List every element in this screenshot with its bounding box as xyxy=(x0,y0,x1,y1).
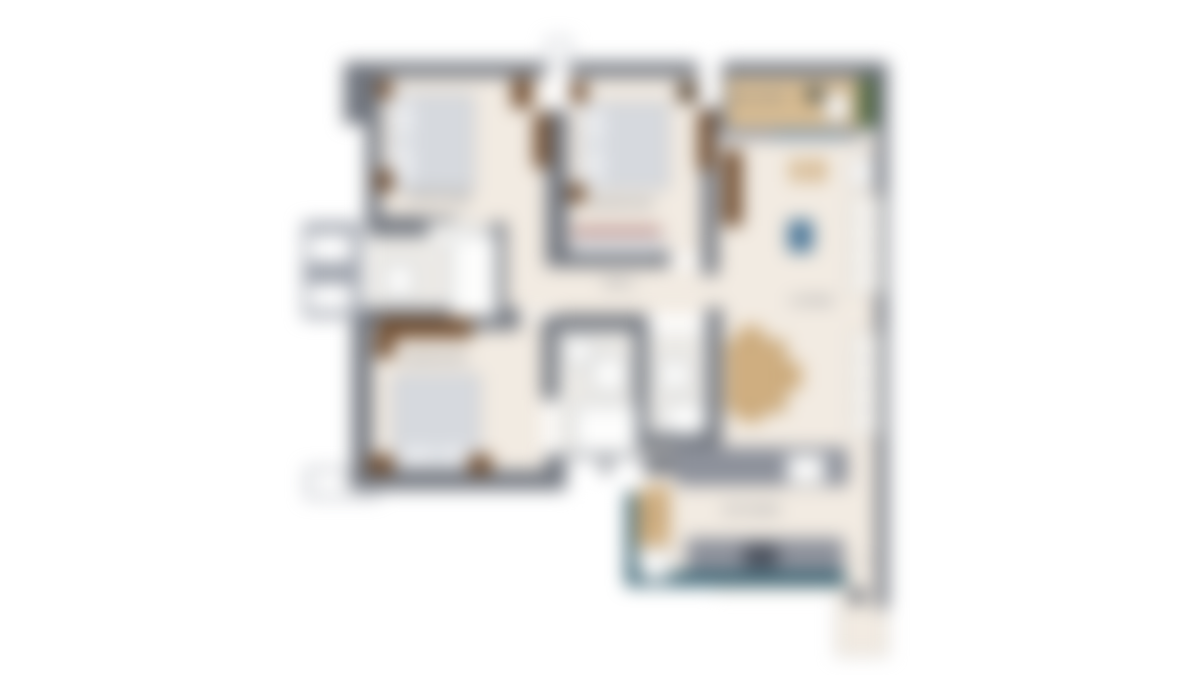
balcony-faucet-icon xyxy=(806,87,824,102)
wall-left-upper xyxy=(366,76,381,225)
shower-icon xyxy=(450,234,498,318)
bench-icon xyxy=(572,227,662,254)
stove-icon xyxy=(744,544,778,568)
nightstand-icon xyxy=(468,455,492,474)
tv-unit-icon xyxy=(678,82,698,102)
wall-left-lower xyxy=(352,315,372,475)
dining-table-icon xyxy=(726,340,786,412)
nightstand-icon xyxy=(376,80,392,98)
room-label-kitchen: KITCHEN xyxy=(712,504,792,518)
pillow-icon xyxy=(398,446,437,464)
room-label-bedroom1: BEDROOM xyxy=(400,190,480,204)
toilet-icon xyxy=(383,262,416,300)
toilet-icon xyxy=(590,356,628,394)
corridor-wardrobe xyxy=(850,332,880,436)
ac-ledge-left-window-2 xyxy=(308,284,352,310)
pillow-icon xyxy=(394,142,414,184)
hall-floor-horizontal xyxy=(556,267,714,315)
chair-icon xyxy=(791,159,804,182)
tall-cabinet-column xyxy=(848,196,882,294)
chair-icon xyxy=(810,159,825,182)
pillow-icon xyxy=(585,106,605,144)
tv-cabinet-icon xyxy=(788,220,813,252)
wardrobe-icon-bedroom3 xyxy=(378,318,472,338)
stool-icon xyxy=(375,338,394,358)
corridor-step-mark xyxy=(850,588,864,604)
wardrobe-icon-bedroom1 xyxy=(534,113,550,168)
dresser-icon xyxy=(512,78,532,108)
round-table-icon xyxy=(849,157,876,188)
sink-icon xyxy=(564,336,594,366)
wall-bathrooms-right xyxy=(706,308,722,450)
pillow-icon xyxy=(585,146,605,184)
service-notch-left xyxy=(566,458,602,492)
kitchen-sink-icon xyxy=(786,454,826,484)
sink-icon xyxy=(658,358,692,392)
room-label-hall: HALL xyxy=(580,277,660,291)
balcony-basin-icon xyxy=(824,92,850,122)
room-label-living: LIVING xyxy=(772,295,852,309)
floor-plan-canvas: BEDROOM BEDROOM BEDROOM HALL LIVING KITC… xyxy=(300,30,890,665)
shower-icon xyxy=(574,404,638,454)
room-label-balcony: BALCONY xyxy=(718,92,798,106)
entry-door-leaf-icon xyxy=(547,38,571,64)
service-notch-right xyxy=(610,458,644,492)
pillow-icon xyxy=(394,98,414,140)
nightstand-icon xyxy=(368,455,394,474)
kitchen-tall-cabinet xyxy=(636,486,670,546)
nightstand-icon xyxy=(568,82,587,102)
page: { "plan": { "type": "floor-plan", "blur_… xyxy=(0,0,1200,675)
wardrobe-icon-bedroom2 xyxy=(698,110,714,170)
entry-cabinet-icon xyxy=(723,150,742,226)
ac-ledge-left-window-1 xyxy=(308,234,352,262)
toilet-icon xyxy=(662,402,708,436)
room-label-bedroom3: BEDROOM xyxy=(395,352,475,366)
room-label-bedroom2: BEDROOM xyxy=(582,198,662,212)
wall-top xyxy=(344,62,886,77)
washing-machine-icon xyxy=(640,550,670,580)
kitchen-border-left xyxy=(626,486,636,586)
nightstand-icon xyxy=(376,170,393,192)
sliding-door-icon xyxy=(774,131,846,139)
planter-icon xyxy=(858,76,878,128)
